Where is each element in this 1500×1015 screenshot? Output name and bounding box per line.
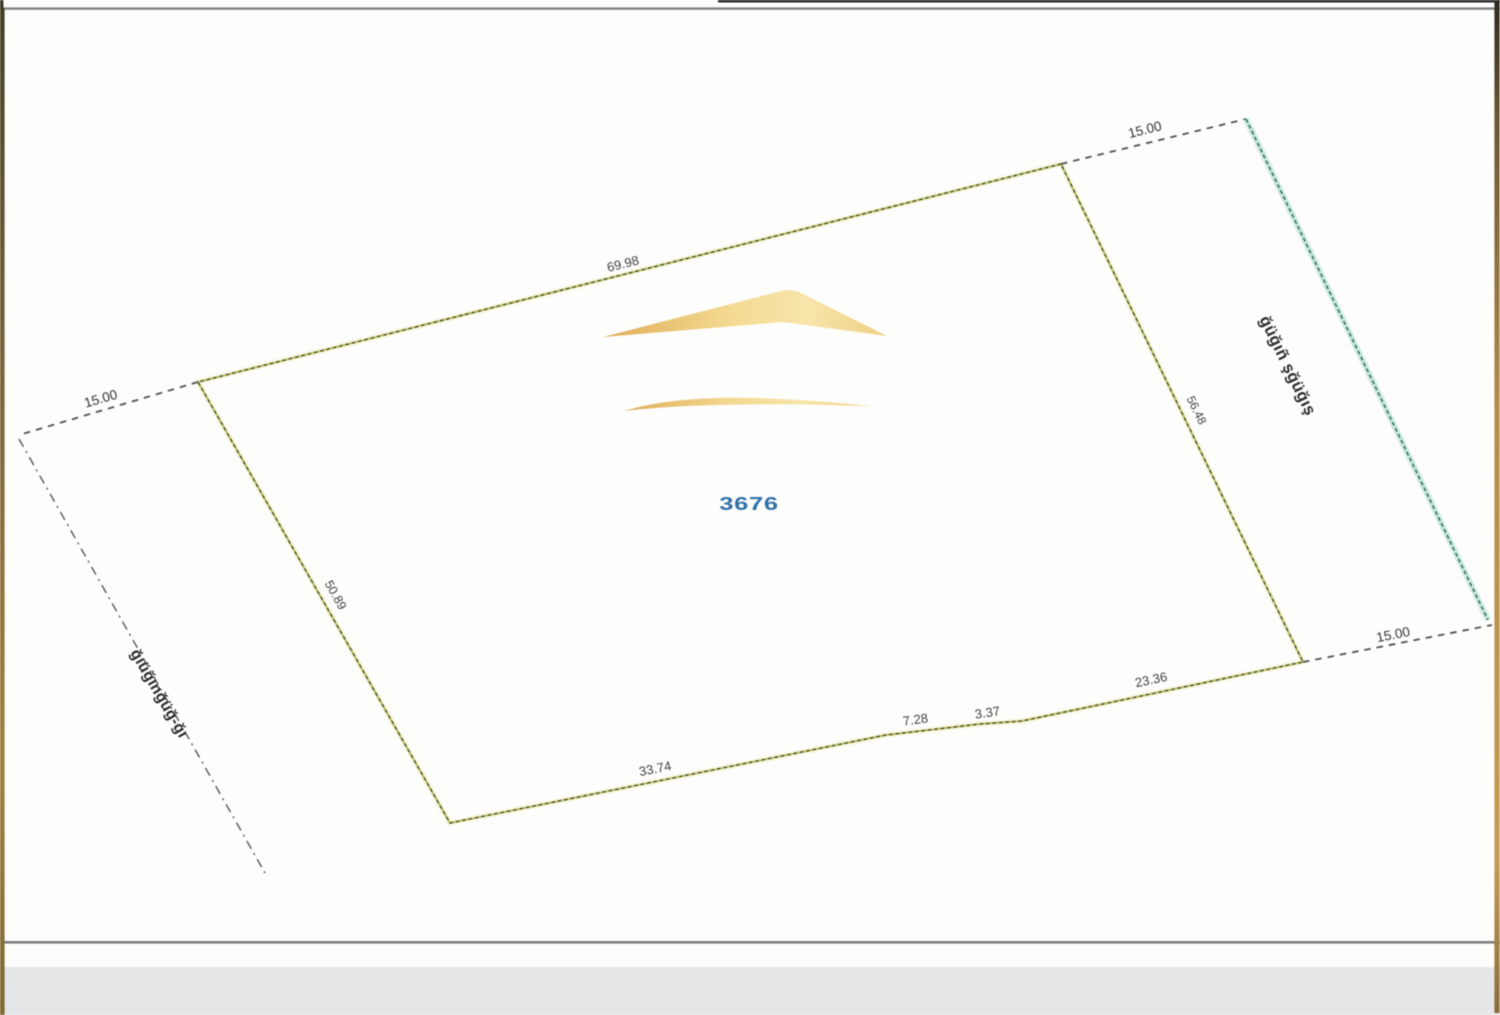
svg-text:3676: 3676: [719, 493, 779, 514]
